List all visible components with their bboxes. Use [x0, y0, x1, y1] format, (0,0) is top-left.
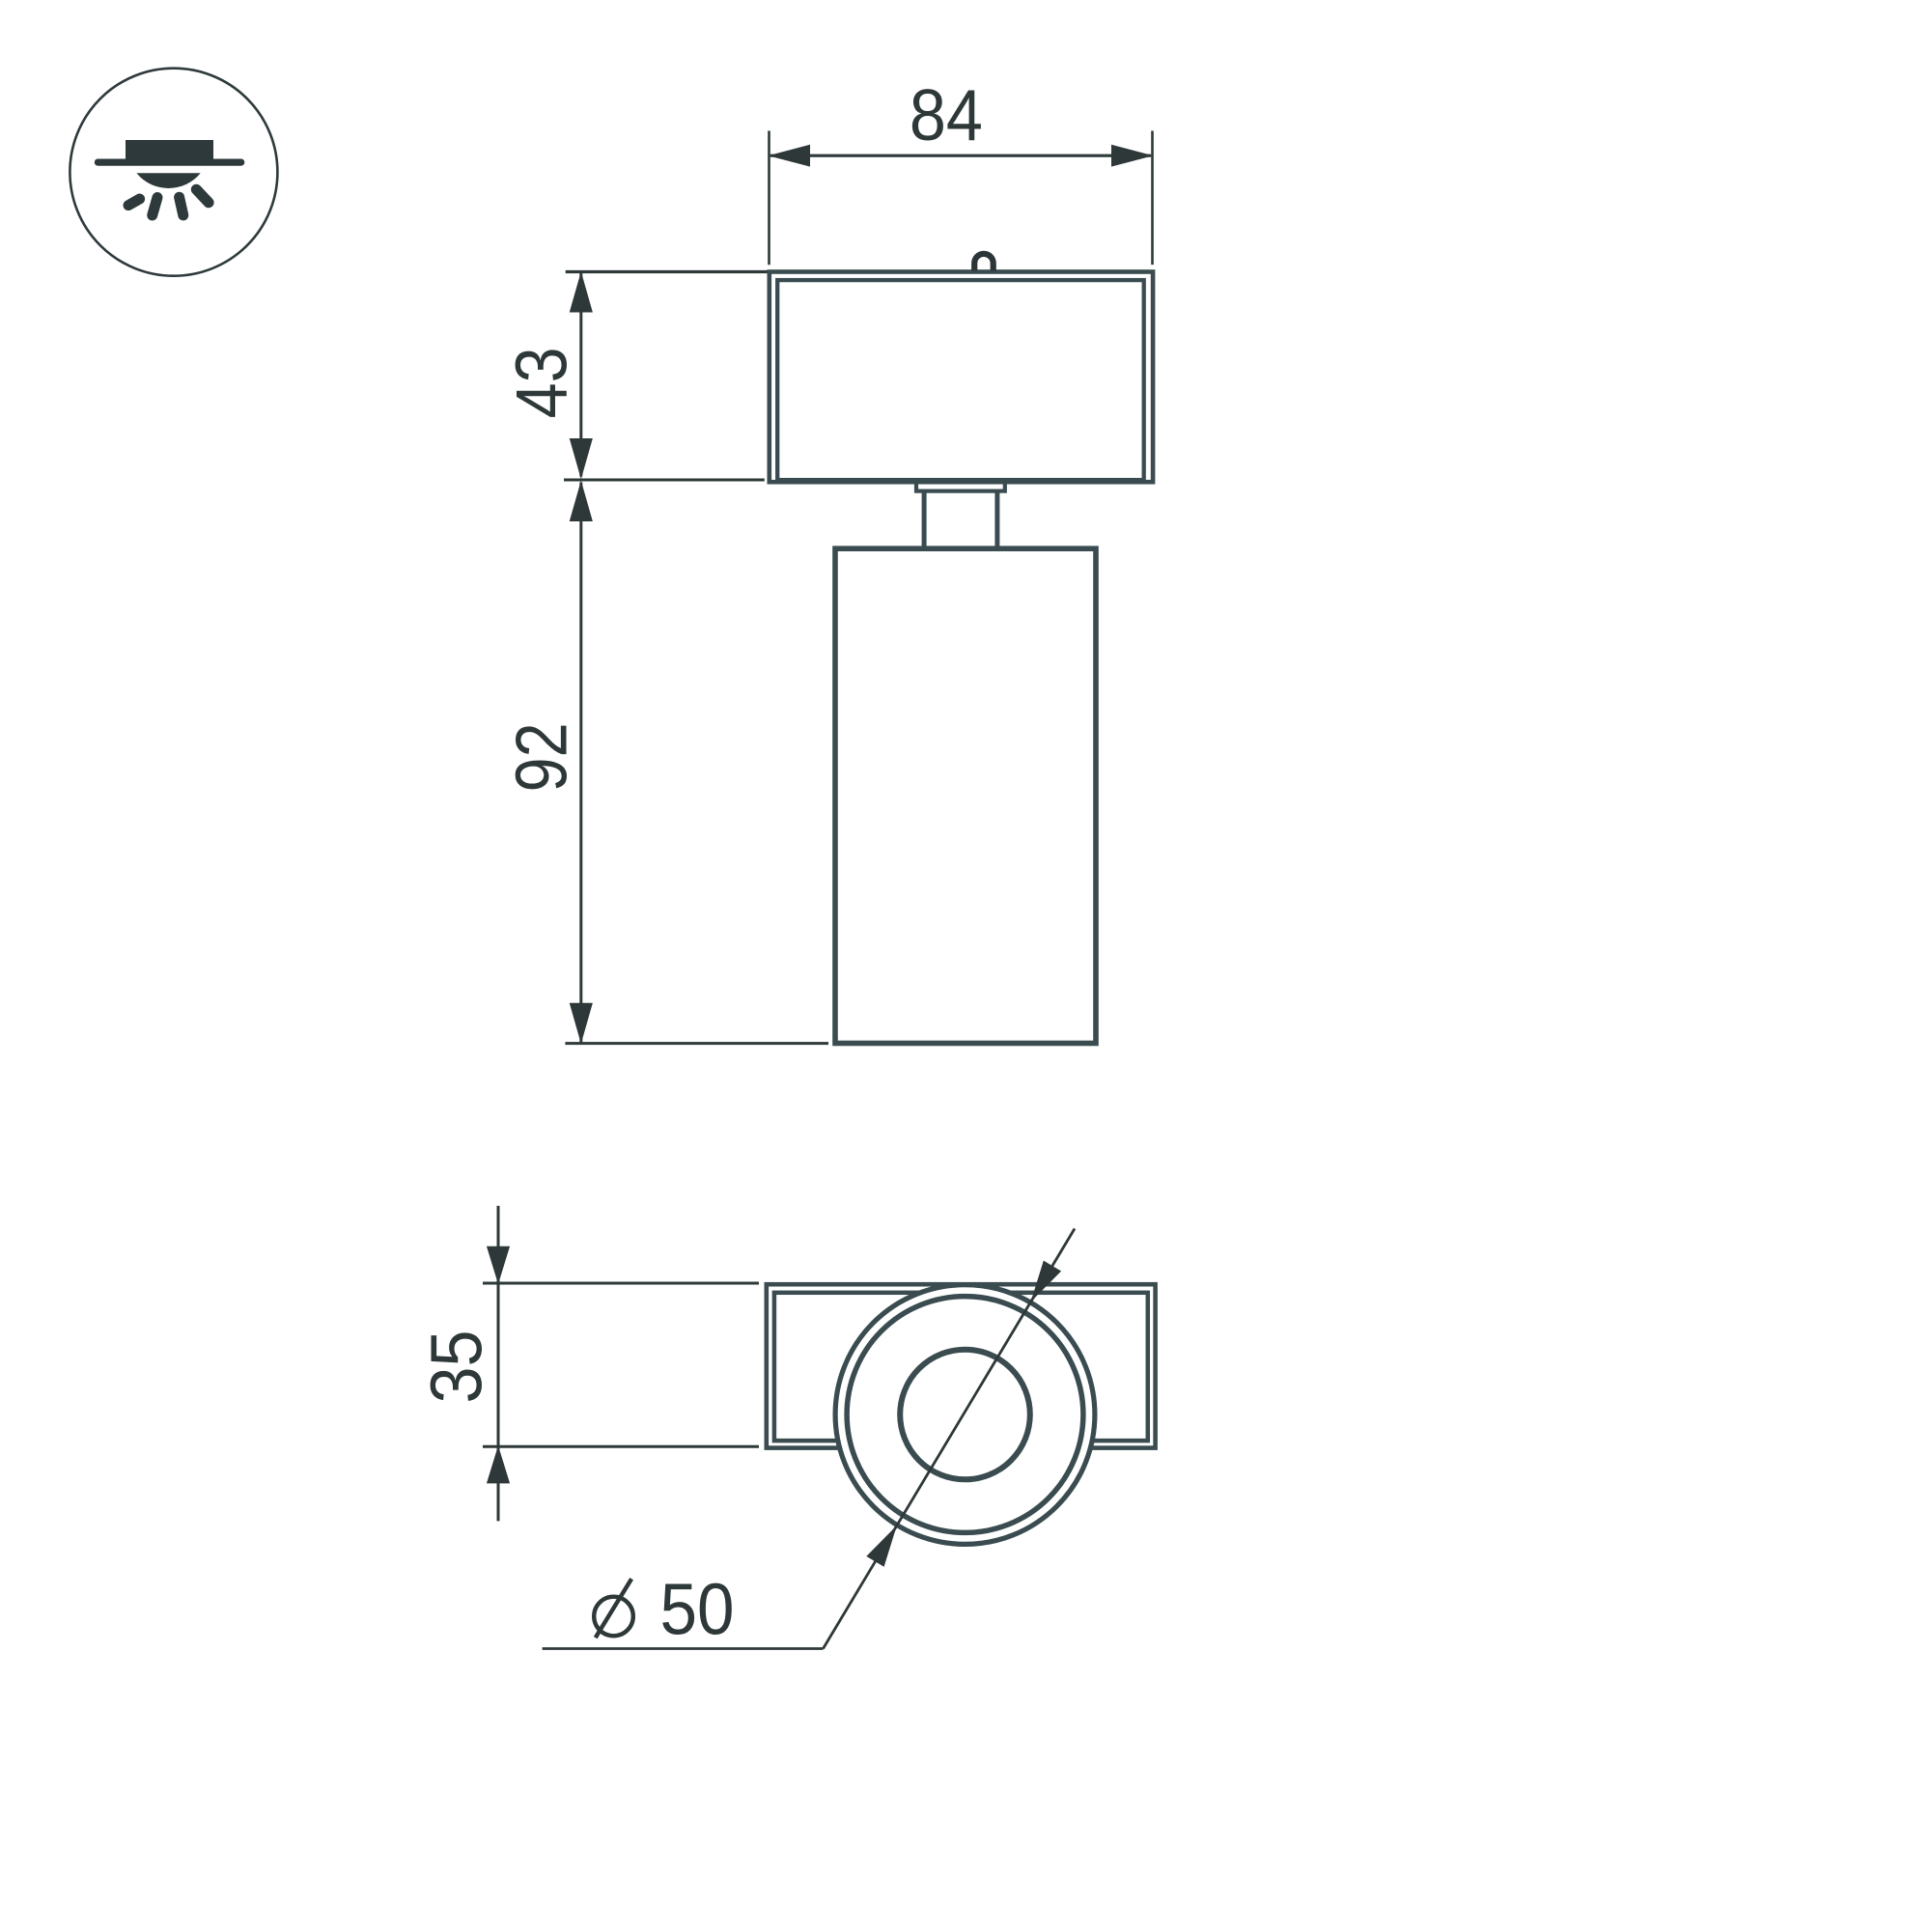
svg-text:92: 92	[500, 722, 581, 792]
svg-text:43: 43	[500, 347, 581, 418]
svg-text:35: 35	[415, 1330, 496, 1404]
svg-text:50: 50	[660, 1568, 735, 1649]
svg-text:84: 84	[910, 74, 983, 155]
